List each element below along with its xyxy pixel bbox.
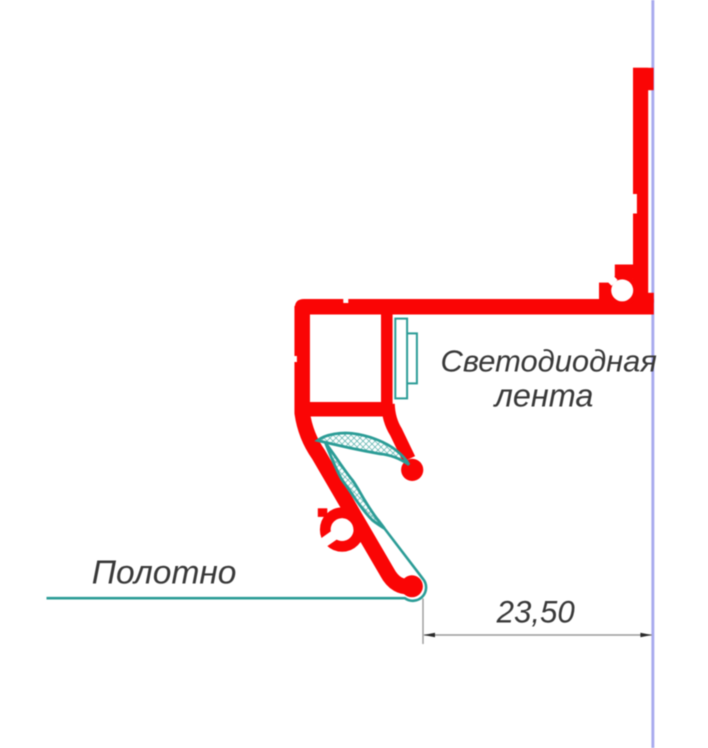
- svg-text:лента: лента: [493, 378, 594, 414]
- svg-text:Светодиодная: Светодиодная: [441, 344, 657, 379]
- svg-text:Полотно: Полотно: [92, 555, 237, 592]
- svg-text:23,50: 23,50: [496, 595, 576, 630]
